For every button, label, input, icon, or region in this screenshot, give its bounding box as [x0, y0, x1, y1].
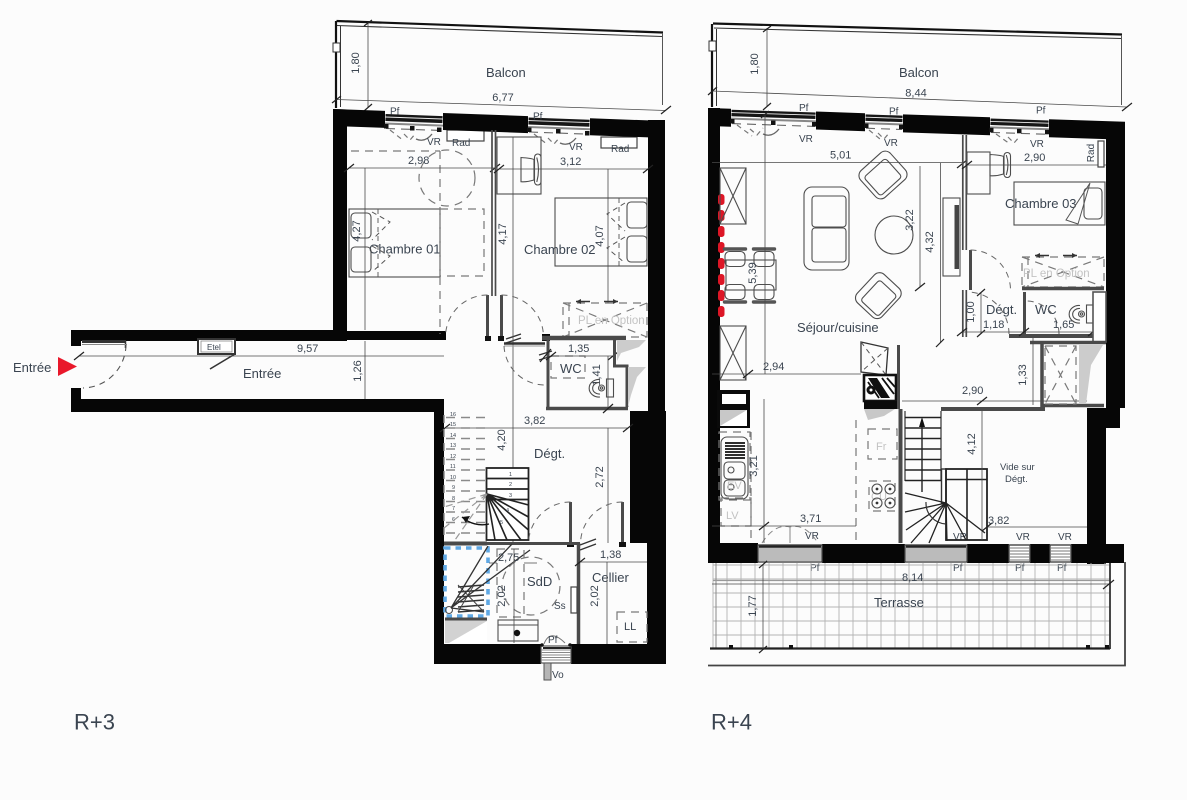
svg-text:VR: VR [799, 134, 813, 145]
svg-text:3,82: 3,82 [524, 415, 545, 427]
svg-text:3,71: 3,71 [800, 513, 821, 525]
svg-text:Vo: Vo [552, 670, 564, 681]
svg-text:Fr: Fr [876, 441, 887, 453]
svg-text:Dégt.: Dégt. [534, 446, 565, 461]
svg-text:VR: VR [1030, 139, 1044, 150]
svg-text:2,94: 2,94 [763, 361, 784, 373]
svg-text:15: 15 [450, 422, 456, 428]
svg-text:Pf: Pf [799, 103, 809, 114]
svg-text:1,18: 1,18 [983, 319, 1004, 331]
svg-text:5,39: 5,39 [747, 262, 759, 283]
svg-text:4,27: 4,27 [351, 220, 363, 241]
svg-text:4,17: 4,17 [497, 223, 509, 244]
svg-text:WC: WC [1035, 302, 1057, 317]
svg-text:3: 3 [509, 493, 512, 499]
svg-text:1,65: 1,65 [1053, 319, 1074, 331]
svg-text:4,20: 4,20 [496, 429, 508, 450]
svg-text:12: 12 [450, 454, 456, 460]
svg-text:Pf: Pf [889, 107, 899, 118]
svg-text:1,00: 1,00 [965, 301, 977, 322]
svg-text:Balcon: Balcon [899, 65, 939, 80]
svg-text:2,72: 2,72 [594, 466, 606, 487]
svg-text:EV: EV [727, 480, 742, 492]
svg-text:Chambre 01: Chambre 01 [369, 242, 441, 257]
svg-text:Séjour/cuisine: Séjour/cuisine [797, 320, 879, 335]
svg-text:WC: WC [560, 361, 582, 376]
svg-text:11: 11 [450, 464, 456, 470]
svg-text:Cellier: Cellier [592, 570, 630, 585]
svg-text:VR: VR [1016, 532, 1030, 543]
svg-text:1,38: 1,38 [600, 549, 621, 561]
svg-text:5: 5 [500, 520, 503, 526]
svg-text:VR: VR [1058, 532, 1072, 543]
svg-text:LL: LL [624, 621, 636, 633]
svg-text:2,02: 2,02 [589, 585, 601, 606]
svg-text:1,35: 1,35 [568, 343, 589, 355]
svg-text:VR: VR [569, 142, 583, 153]
svg-text:14: 14 [450, 433, 456, 439]
svg-text:1,26: 1,26 [352, 360, 364, 381]
svg-text:1: 1 [509, 472, 512, 478]
svg-text:VR: VR [427, 137, 441, 148]
svg-text:Pf: Pf [548, 635, 558, 646]
svg-text:Rad: Rad [1086, 144, 1097, 162]
svg-text:SdD: SdD [527, 574, 552, 589]
svg-text:1,33: 1,33 [1017, 364, 1029, 385]
svg-text:Rad: Rad [611, 144, 629, 155]
svg-text:6,77: 6,77 [492, 92, 513, 104]
svg-text:2,90: 2,90 [962, 385, 983, 397]
svg-text:Chambre 02: Chambre 02 [524, 242, 596, 257]
svg-text:1,80: 1,80 [749, 53, 761, 74]
svg-text:10: 10 [450, 475, 456, 481]
svg-text:7: 7 [452, 506, 455, 512]
svg-text:PL en Option: PL en Option [1023, 268, 1090, 280]
svg-text:8,44: 8,44 [905, 88, 926, 100]
svg-text:2,02: 2,02 [496, 585, 508, 606]
svg-text:1,80: 1,80 [350, 52, 362, 73]
svg-text:VR: VR [884, 138, 898, 149]
svg-text:VR: VR [805, 531, 819, 542]
svg-text:8: 8 [452, 496, 455, 502]
svg-text:1,77: 1,77 [747, 595, 759, 616]
svg-text:LV: LV [726, 510, 739, 522]
svg-text:2,98: 2,98 [408, 155, 429, 167]
svg-text:R+3: R+3 [74, 710, 115, 735]
svg-text:R+4: R+4 [711, 710, 752, 735]
svg-text:Vide sur: Vide sur [1000, 462, 1035, 473]
svg-text:9: 9 [452, 485, 455, 491]
svg-text:16: 16 [450, 412, 456, 418]
svg-text:2: 2 [509, 482, 512, 488]
svg-text:3,82: 3,82 [988, 515, 1009, 527]
svg-text:Rad: Rad [452, 138, 470, 149]
svg-text:Balcon: Balcon [486, 65, 526, 80]
svg-text:13: 13 [450, 443, 456, 449]
svg-text:9,57: 9,57 [297, 343, 318, 355]
svg-text:Chambre 03: Chambre 03 [1005, 196, 1077, 211]
svg-text:4,32: 4,32 [924, 231, 936, 252]
svg-text:4,07: 4,07 [594, 225, 606, 246]
svg-text:3,21: 3,21 [748, 455, 760, 476]
svg-text:2,90: 2,90 [1024, 152, 1045, 164]
svg-text:PL en Option: PL en Option [578, 315, 645, 327]
svg-text:4: 4 [506, 508, 509, 514]
svg-text:2,75: 2,75 [498, 552, 519, 564]
svg-text:3,22: 3,22 [904, 209, 916, 230]
svg-text:Dégt.: Dégt. [1005, 474, 1028, 485]
svg-text:4,12: 4,12 [966, 433, 978, 454]
svg-text:Etel: Etel [207, 343, 221, 352]
svg-text:Ss: Ss [554, 601, 566, 612]
svg-text:Entrée: Entrée [243, 366, 281, 381]
svg-text:8,14: 8,14 [902, 572, 923, 584]
svg-text:5,01: 5,01 [830, 150, 851, 162]
svg-text:Pf: Pf [533, 112, 543, 123]
svg-text:3,12: 3,12 [560, 156, 581, 168]
svg-text:Pf: Pf [1036, 106, 1046, 117]
svg-text:Pf: Pf [390, 107, 400, 118]
svg-text:Entrée: Entrée [13, 360, 51, 375]
svg-text:Terrasse: Terrasse [874, 595, 924, 610]
